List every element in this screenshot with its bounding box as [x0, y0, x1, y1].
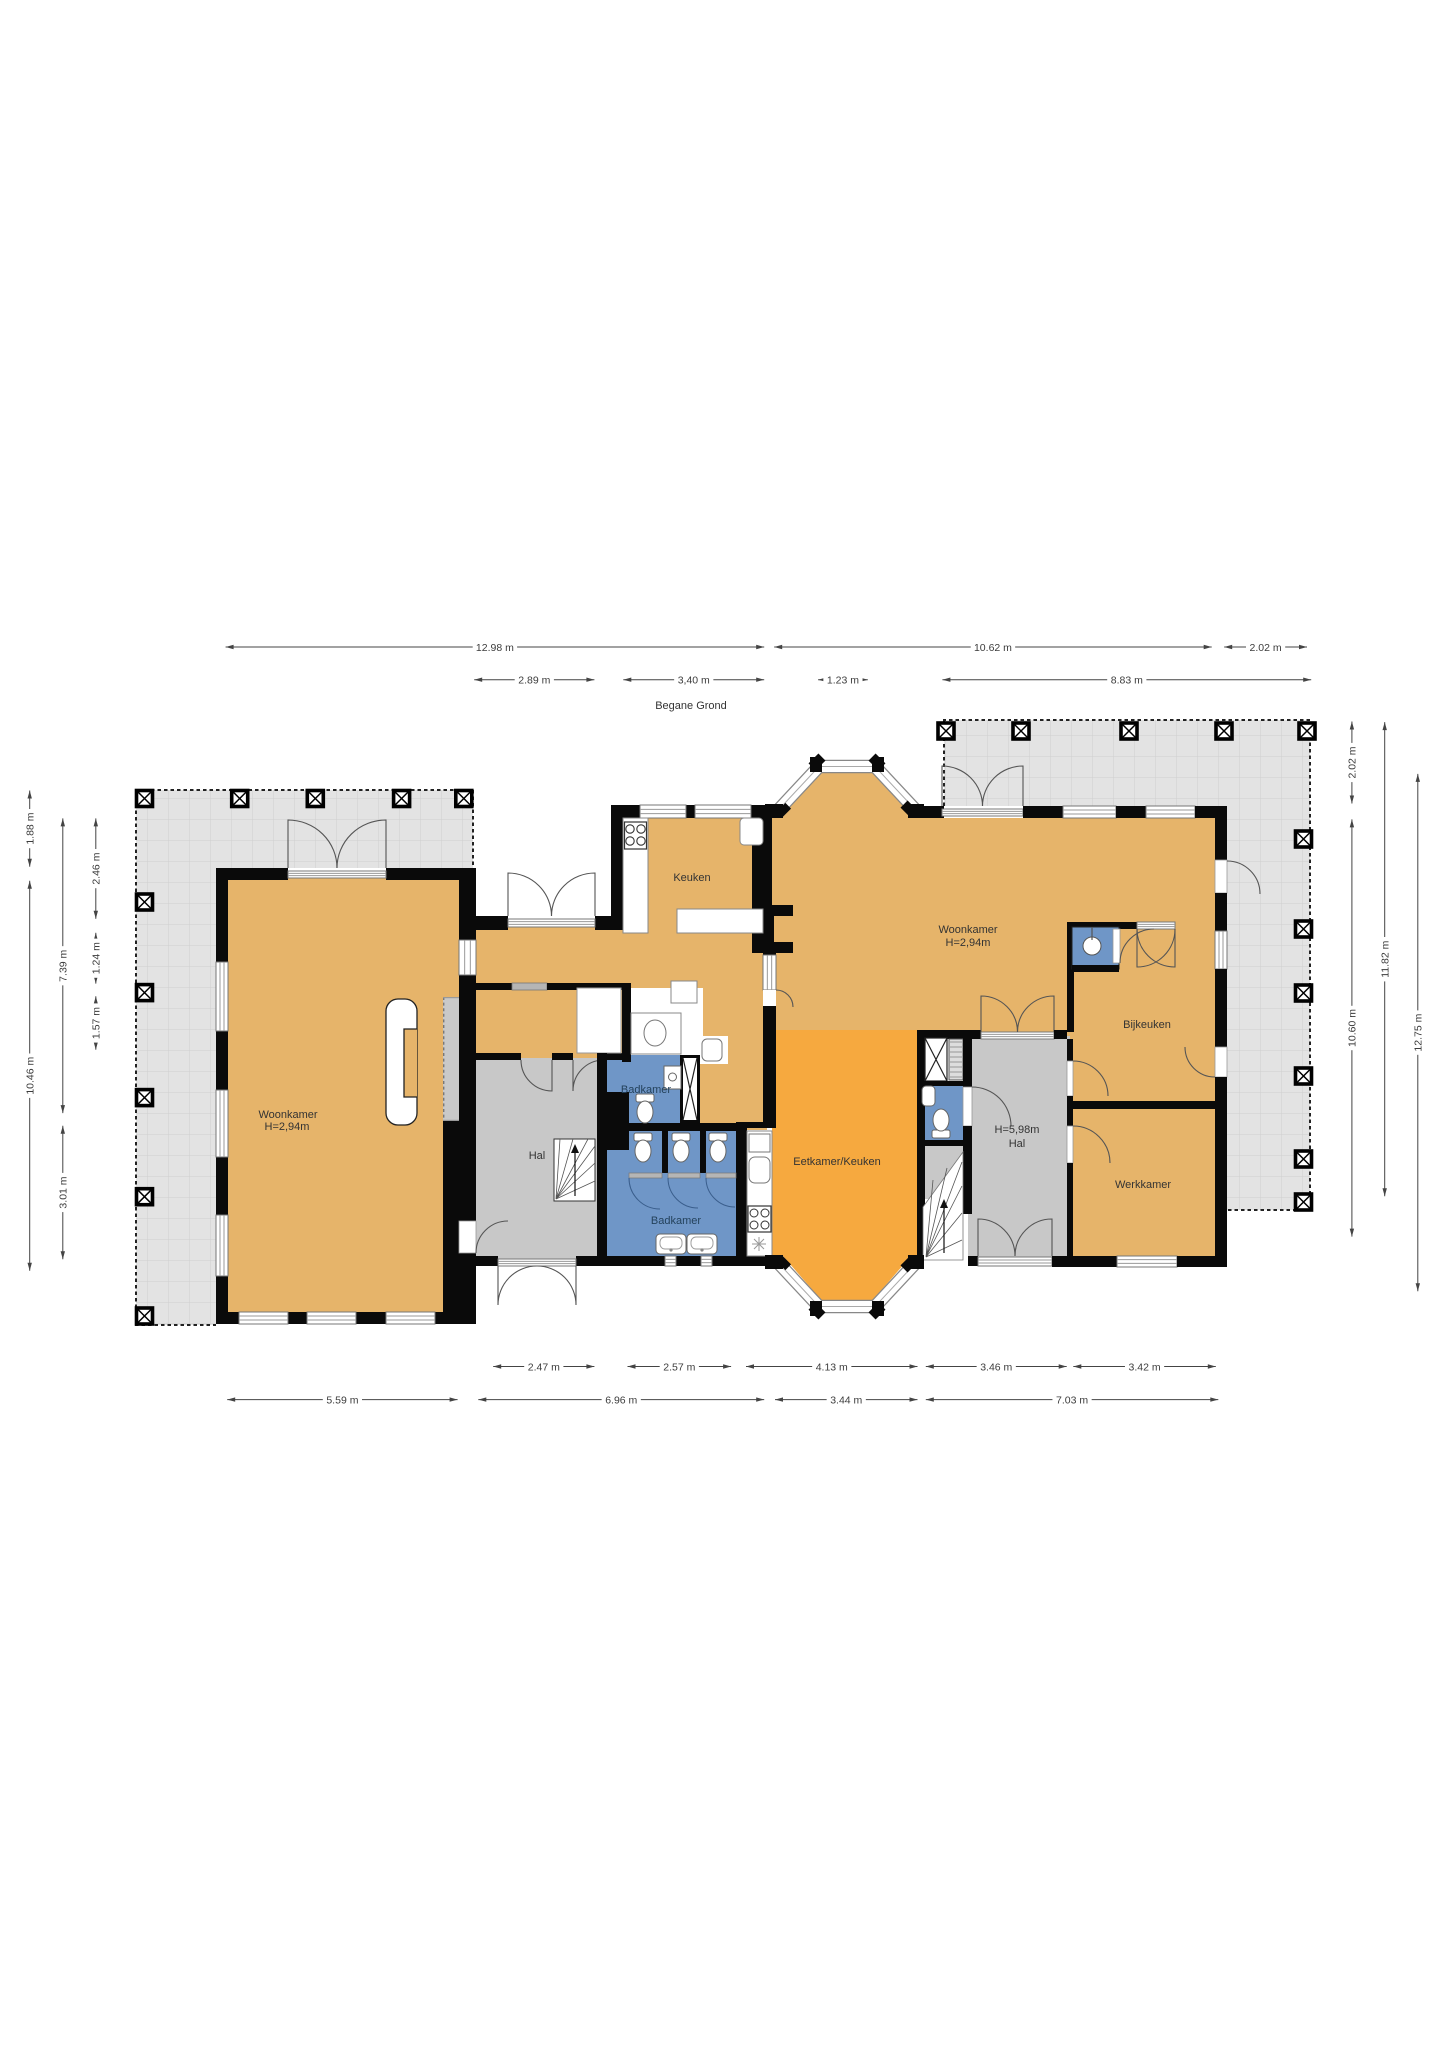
svg-text:3.01 m: 3.01 m [58, 1176, 70, 1208]
svg-text:Woonkamer: Woonkamer [258, 1109, 317, 1121]
svg-text:2.89 m: 2.89 m [518, 675, 550, 687]
svg-text:3.42 m: 3.42 m [1128, 1361, 1160, 1373]
svg-text:2.02 m: 2.02 m [1347, 746, 1359, 778]
svg-text:3.46 m: 3.46 m [980, 1361, 1012, 1373]
svg-text:1.88 m: 1.88 m [24, 812, 36, 844]
svg-text:11.82 m: 11.82 m [1380, 940, 1392, 977]
svg-text:Begane Grond: Begane Grond [655, 700, 727, 712]
svg-text:7.03 m: 7.03 m [1056, 1394, 1088, 1406]
svg-text:Eetkamer/Keuken: Eetkamer/Keuken [793, 1156, 880, 1168]
svg-text:1.23 m: 1.23 m [827, 675, 859, 687]
svg-text:10.62 m: 10.62 m [974, 642, 1012, 654]
svg-text:2.46 m: 2.46 m [91, 852, 103, 884]
svg-text:1.57 m: 1.57 m [91, 1007, 103, 1039]
svg-text:1.24 m: 1.24 m [91, 942, 103, 974]
svg-text:4.13 m: 4.13 m [816, 1361, 848, 1373]
svg-text:2.47 m: 2.47 m [528, 1361, 560, 1373]
svg-text:Hal: Hal [529, 1150, 546, 1162]
svg-text:Badkamer: Badkamer [651, 1215, 701, 1227]
svg-text:Woonkamer: Woonkamer [938, 924, 997, 936]
svg-text:Badkamer: Badkamer [621, 1084, 671, 1096]
svg-text:3,40 m: 3,40 m [678, 675, 710, 687]
svg-text:Keuken: Keuken [673, 872, 710, 884]
svg-text:7.39 m: 7.39 m [58, 949, 70, 981]
svg-text:12.98 m: 12.98 m [476, 642, 514, 654]
svg-text:3.44 m: 3.44 m [830, 1394, 862, 1406]
svg-text:6.96 m: 6.96 m [605, 1394, 637, 1406]
svg-text:10.60 m: 10.60 m [1347, 1009, 1359, 1047]
svg-text:2.57 m: 2.57 m [663, 1361, 695, 1373]
svg-text:H=2,94m: H=2,94m [946, 937, 991, 949]
svg-text:H=2,94m: H=2,94m [265, 1121, 310, 1133]
svg-text:8.83 m: 8.83 m [1111, 675, 1143, 687]
svg-text:5.59 m: 5.59 m [326, 1394, 358, 1406]
svg-text:Hal: Hal [1009, 1138, 1026, 1150]
svg-text:Bijkeuken: Bijkeuken [1123, 1019, 1171, 1031]
svg-text:2.02 m: 2.02 m [1250, 642, 1282, 654]
svg-text:12.75 m: 12.75 m [1413, 1013, 1425, 1051]
svg-text:H=5,98m: H=5,98m [995, 1124, 1040, 1136]
svg-text:Werkkamer: Werkkamer [1115, 1179, 1171, 1191]
svg-text:10.46 m: 10.46 m [25, 1056, 37, 1094]
